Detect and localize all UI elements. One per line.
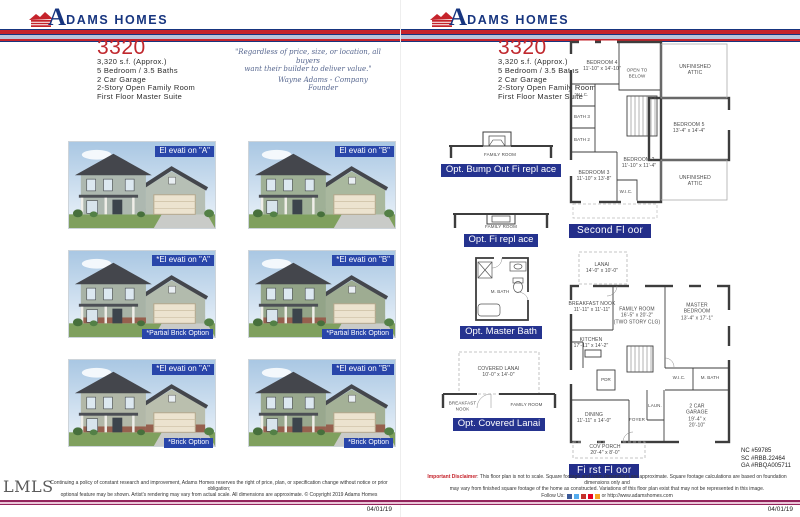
option-master-bath: M. BATH Opt. Master Bath [439,256,563,339]
logo-wordmark: DAMS HOMES [66,13,168,27]
room-label-foyer: FOYER [629,417,645,423]
room-label-family-room: FAMILY ROOM 16'-5" x 20'-2" (TWO STORY C… [614,307,661,326]
elevation-label: *El evati on "A" [152,255,214,266]
follow-us-label: Follow Us: [541,493,564,499]
page-left: A DAMS HOMES 3320 3,320 s.f. (Approx.) 5… [0,0,400,517]
option-caption: Opt. Bump Out Fi repl ace [441,164,561,177]
follow-us-row: Follow Us: or http://www.adamshomes.com [419,493,795,499]
elevation-card: *El evati on "A" *Partial Brick Option [68,250,216,338]
founder-quote: "Regardless of price, size, or location,… [233,48,383,93]
room-label-bath3: BATH 3 [574,114,590,120]
disclaimer-line: optional feature may be shown. Artist's … [61,492,378,498]
room-label-master-bath: M. BATH [701,375,720,381]
model-specs: 3,320 s.f. (Approx.) 5 Bedroom / 3.5 Bat… [97,58,195,102]
room-label-master-bath: M. BATH [491,289,510,295]
adams-homes-logo: A DAMS HOMES [429,4,569,29]
logo-letter-a: A [449,7,467,29]
elevation-card: *El evati on "A" *Brick Option [68,359,216,447]
logo-wordmark: DAMS HOMES [467,13,569,27]
room-label-bedroom3: BEDROOM 3 11'-10" x 13'-8" [577,170,612,183]
quote-line: want their builder to deliver value." [244,65,371,73]
brick-option-label: *Brick Option [344,438,393,448]
blog-icon[interactable] [595,494,600,499]
room-label-breakfast-nook: BREAKFAST NOOK 11'-11" x 11'-11" [569,301,616,314]
right-disclaimer: Important Disclaimer: This floor plan is… [419,474,795,499]
disclaimer-line: Continuing a policy of constant research… [50,480,387,492]
brick-option-label: *Partial Brick Option [142,329,213,339]
room-label-open-to-below: OPEN TO BELOW [627,67,648,78]
elevation-card: El evati on "A" [68,141,216,229]
option-fireplace: FAMILY ROOM Opt. Fi repl ace [439,202,563,247]
website-link[interactable]: or http://www.adamshomes.com [602,493,673,499]
elevation-card: *El evati on "B" *Partial Brick Option [248,250,396,338]
option-caption: Opt. Fi repl ace [464,234,539,247]
elevation-card: *El evati on "B" *Brick Option [248,359,396,447]
spec-line: First Floor Master Suite [97,93,195,102]
brick-option-label: *Partial Brick Option [322,329,393,339]
license-line: GA #RBQA005711 [741,463,791,471]
room-label-laundry: LAUN. [648,403,662,409]
option-caption: Opt. Covered Lanai [453,418,545,431]
room-label-covered-porch: COV PORCH 20'-4" x 8'-0" [589,444,620,457]
first-floor-plan: LANAI 14'-0" x 10'-0" BREAKFAST NOOK 11'… [569,250,731,462]
disclaimer-line: : This floor plan is not to scale. Squar… [477,474,787,486]
room-label-bedroom4: BEDROOM 4 11'-10" x 14'-10" [583,60,621,73]
license-line: NC #59785 [741,448,791,456]
license-numbers: NC #59785 SC #RBB.22464 GA #RBQA005711 [741,448,791,471]
adams-homes-logo: A DAMS HOMES [28,4,168,29]
room-label-family-room: FAMILY ROOM [485,224,517,230]
facebook-icon[interactable] [567,494,572,499]
room-label-dining: DINING 11'-11" x 14'-0" [577,412,611,425]
first-floor-drawing [569,250,731,462]
elevation-label: *El evati on "B" [332,255,394,266]
header-rule [0,29,400,42]
elevation-label: *El evati on "A" [152,364,214,375]
room-label-garage: 2 CAR GARAGE 19'-4" x 20'-10" [680,404,714,429]
youtube-icon[interactable] [581,494,586,499]
room-label-covered-lanai: COVERED LANAI 10'-0" x 14'-0" [478,366,520,379]
brochure-sheet: A DAMS HOMES 3320 3,320 s.f. (Approx.) 5… [0,0,800,517]
room-label-wic: W.I.C. [576,92,589,98]
second-floor-caption: Second Fl oor [569,224,651,238]
twitter-icon[interactable] [574,494,579,499]
room-label-master-bedroom: MASTER BEDROOM 13'-4" x 17'-1" [680,303,714,322]
revision-date: 04/01/19 [768,506,793,513]
logo-letter-a: A [48,7,66,29]
left-disclaimer: Continuing a policy of constant research… [42,480,396,498]
option-covered-lanai: COVERED LANAI 10'-0" x 14'-0" BREAKFAST … [437,350,561,431]
room-label-wic: W.I.C. [620,189,633,195]
room-label-lanai: LANAI 14'-0" x 10'-0" [586,262,618,275]
elevation-label: *El evati on "B" [332,364,394,375]
room-label-kitchen: KITCHEN 17'-11" x 14'-2" [574,337,609,350]
footer-rule [0,500,800,505]
second-floor-plan: BEDROOM 4 11'-10" x 14'-10" OPEN TO BELO… [569,40,731,222]
quote-attribution: Wayne Adams - Company Founder [233,76,383,93]
disclaimer-line: may vary from finished square footage of… [450,486,765,492]
pinterest-icon[interactable] [588,494,593,499]
room-label-bath2: BATH 2 [574,137,590,143]
license-line: SC #RBB.22464 [741,456,791,464]
page-right: A DAMS HOMES 3320 3,320 s.f. (Approx.) 5… [400,0,800,517]
room-label-bedroom2: BEDROOM 2 11'-10" x 11'-4" [622,157,656,170]
elevation-label: El evati on "B" [335,146,394,157]
room-label-unfinished-attic: UNFINISHED ATTIC [677,175,713,188]
option-caption: Opt. Master Bath [460,326,542,339]
room-label-powder-room: PDR [601,377,611,383]
room-label-bedroom5: BEDROOM 5 13'-4" x 14'-4" [673,122,705,135]
quote-line: "Regardless of price, size, or location,… [235,48,381,65]
disclaimer-title: Important Disclaimer [427,474,477,480]
room-label-wic: W.I.C. [673,375,686,381]
room-label-family-room: FAMILY ROOM [484,152,516,158]
revision-date: 04/01/19 [367,506,392,513]
room-label-unfinished-attic: UNFINISHED ATTIC [677,64,713,77]
option-bump-out-fireplace: FAMILY ROOM Opt. Bump Out Fi repl ace [439,128,563,177]
room-label-family-room: FAMILY ROOM [511,402,543,408]
elevation-card: El evati on "B" [248,141,396,229]
room-label-breakfast-nook: BREAKFAST NOOK [449,400,476,411]
elevation-label: El evati on "A" [155,146,214,157]
brick-option-label: *Brick Option [164,438,213,448]
